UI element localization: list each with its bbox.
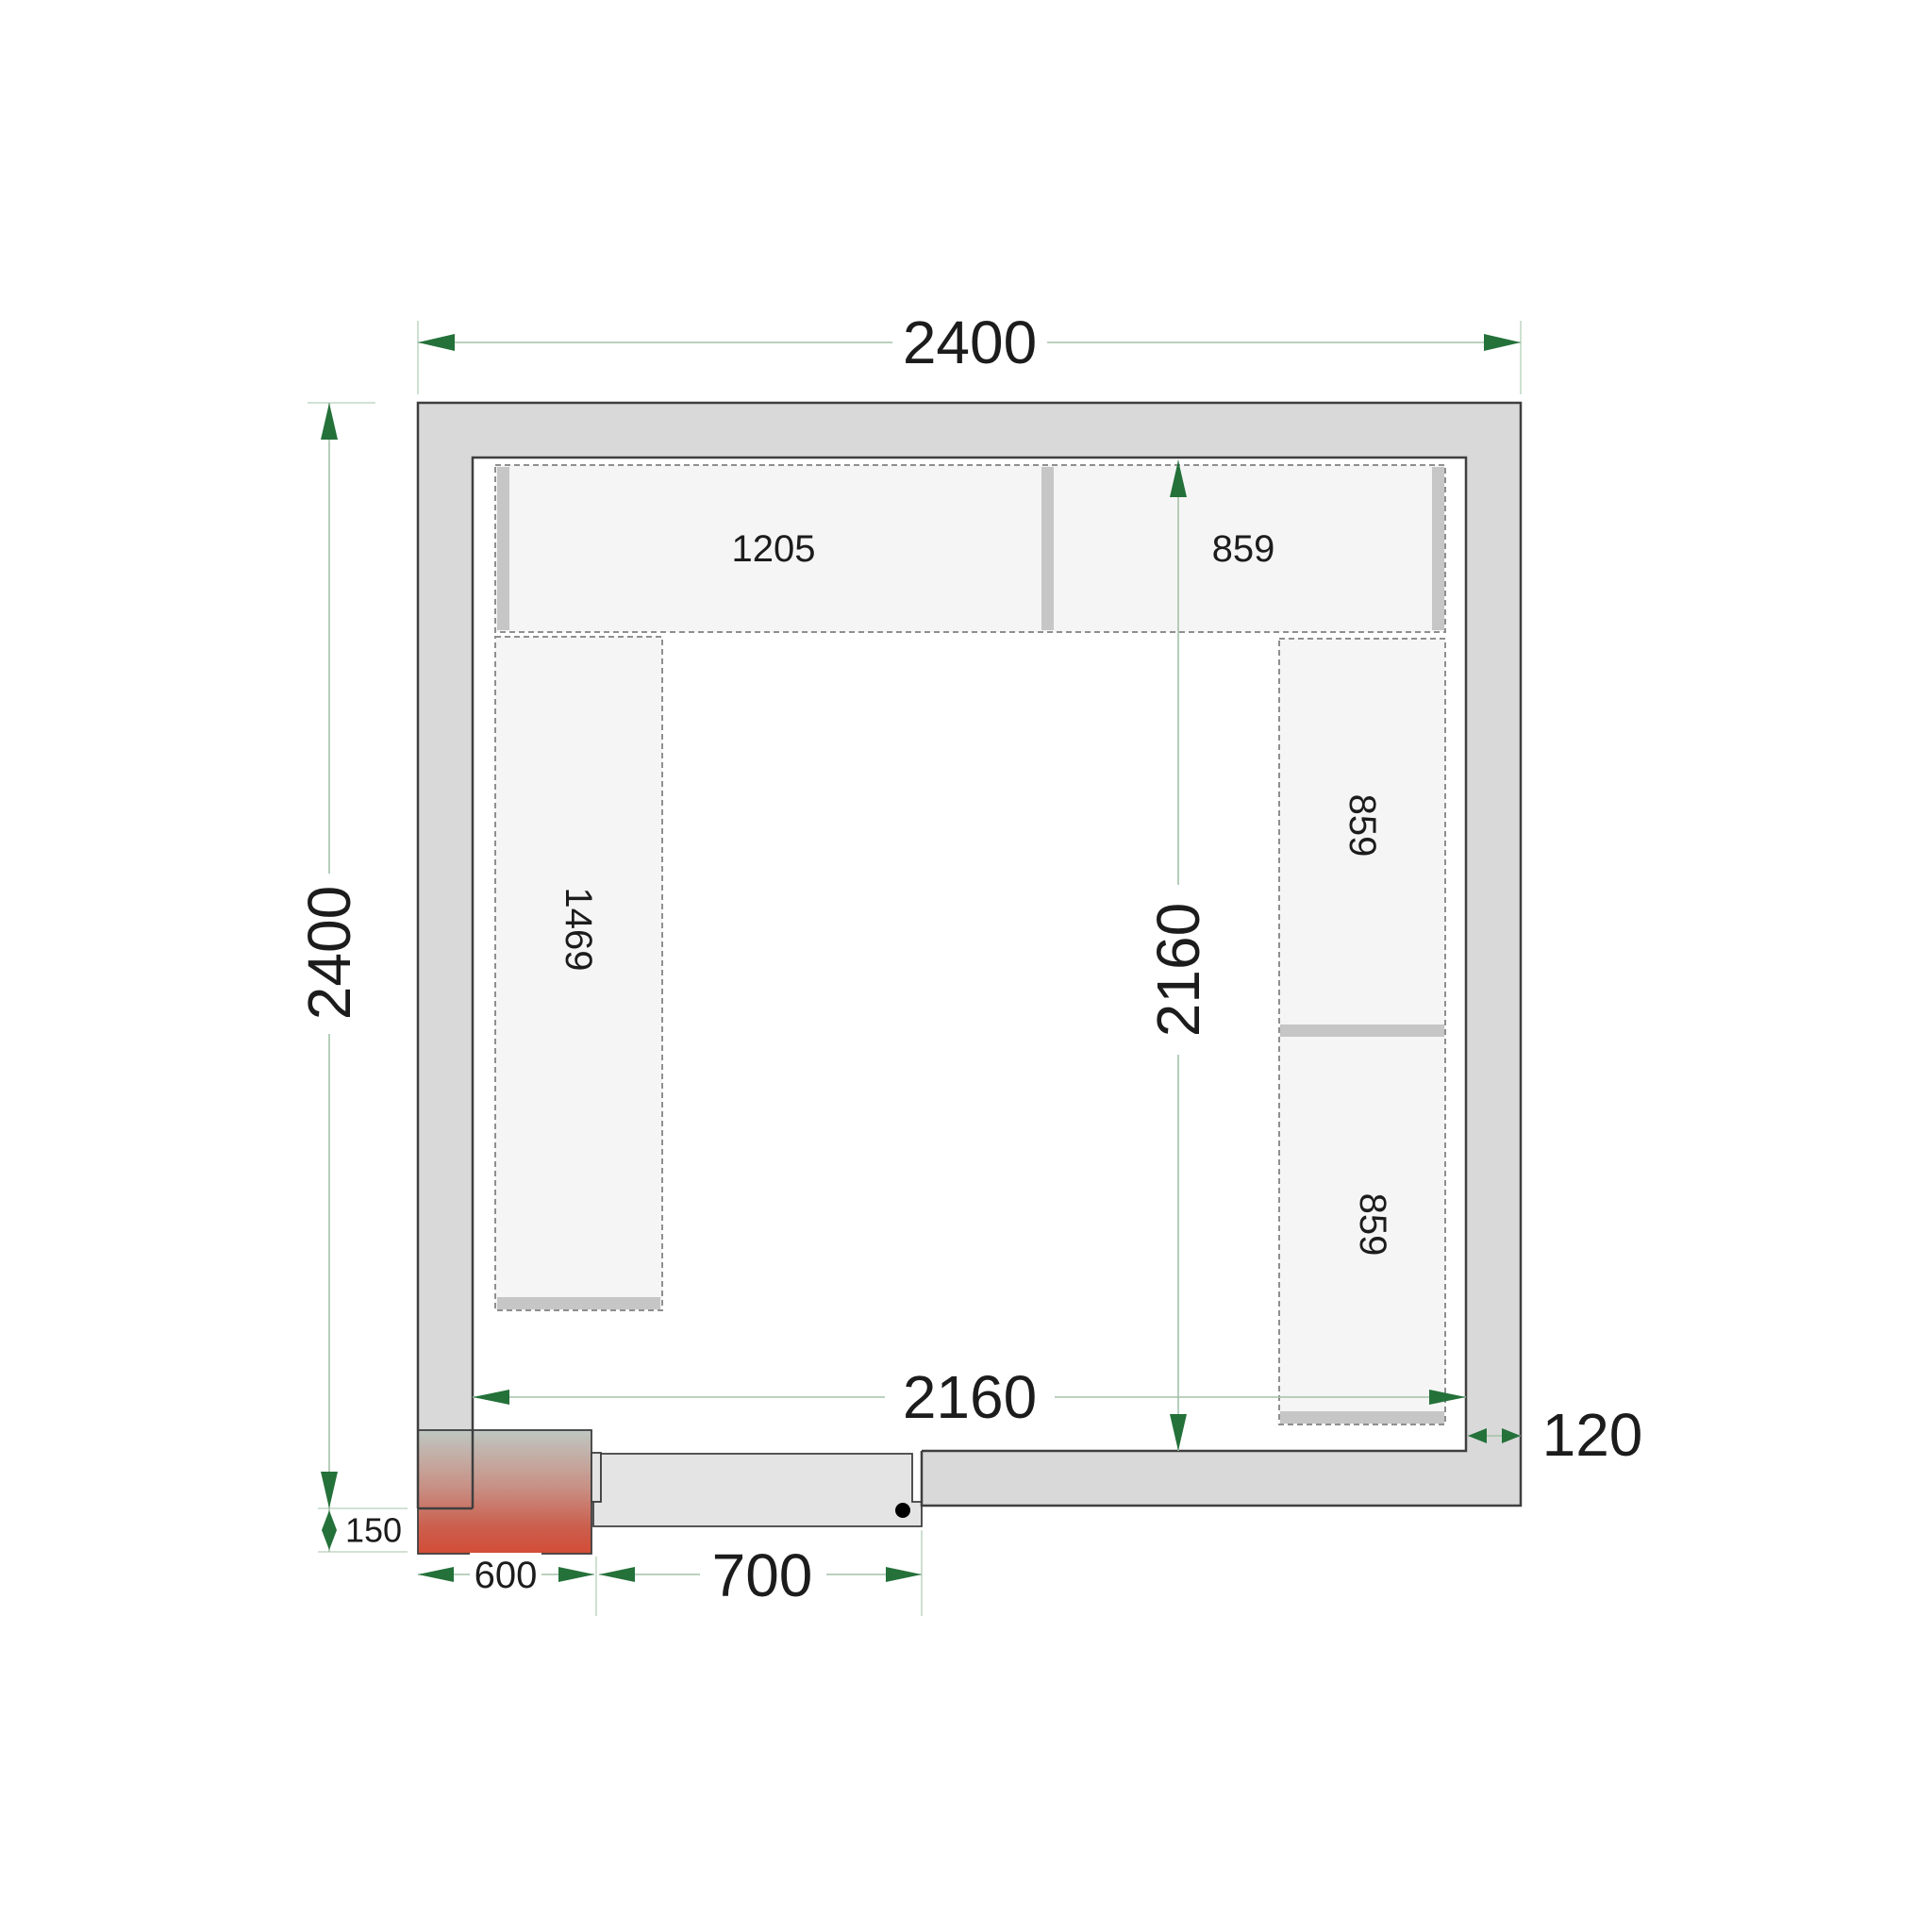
door-frame-filler	[591, 1453, 601, 1502]
dim-door-width: 700	[596, 1530, 922, 1616]
wall-right	[1466, 458, 1521, 1506]
shelf-label-859-top: 859	[1212, 528, 1275, 570]
dim-label-inner-width: 2160	[903, 1363, 1037, 1431]
door-handle-dot	[895, 1503, 910, 1518]
wall-left	[418, 458, 473, 1508]
wall-top	[418, 403, 1521, 458]
dim-label-unit-offset: 150	[345, 1511, 402, 1550]
shelf-end-bar-top-left	[497, 467, 509, 630]
shelf-top-row	[495, 465, 1445, 632]
wall-bottom-segment	[922, 1451, 1466, 1506]
dim-label-inner-height: 2160	[1144, 903, 1212, 1037]
dim-label-outer-height: 2400	[295, 886, 363, 1020]
dim-outer-height: 2400	[295, 403, 408, 1508]
dim-label-wall-thickness: 120	[1542, 1401, 1643, 1469]
shelf-left-column	[495, 637, 662, 1310]
dim-unit-offset: 150	[318, 1508, 408, 1552]
dim-outer-width: 2400	[418, 308, 1521, 394]
door-leaf	[593, 1454, 922, 1526]
shelf-label-859-right-lower: 859	[1352, 1193, 1393, 1257]
condensing-unit	[418, 1430, 591, 1554]
dim-label-unit-width: 600	[475, 1555, 538, 1596]
dim-label-outer-width: 2400	[903, 308, 1037, 376]
shelf-label-1205: 1205	[732, 528, 816, 570]
shelf-divider-right	[1280, 1024, 1444, 1037]
shelf-end-bar-top-right	[1432, 467, 1444, 630]
shelf-label-1469: 1469	[558, 888, 599, 972]
shelf-end-bar-right-bottom	[1280, 1411, 1444, 1424]
floor-plan-canvas: 1205 859 1469 859 859 2400 2400 150 60	[0, 0, 1932, 1932]
dim-label-door-width: 700	[712, 1541, 813, 1609]
floor-plan-page: 1205 859 1469 859 859 2400 2400 150 60	[0, 0, 1932, 1932]
door	[591, 1453, 922, 1526]
shelf-label-859-right-upper: 859	[1341, 794, 1383, 858]
dim-unit-width: 600	[418, 1553, 594, 1596]
shelf-divider-top	[1041, 467, 1054, 630]
shelf-end-bar-left-bottom	[497, 1297, 660, 1309]
shelving: 1205 859 1469 859 859	[495, 465, 1445, 1424]
